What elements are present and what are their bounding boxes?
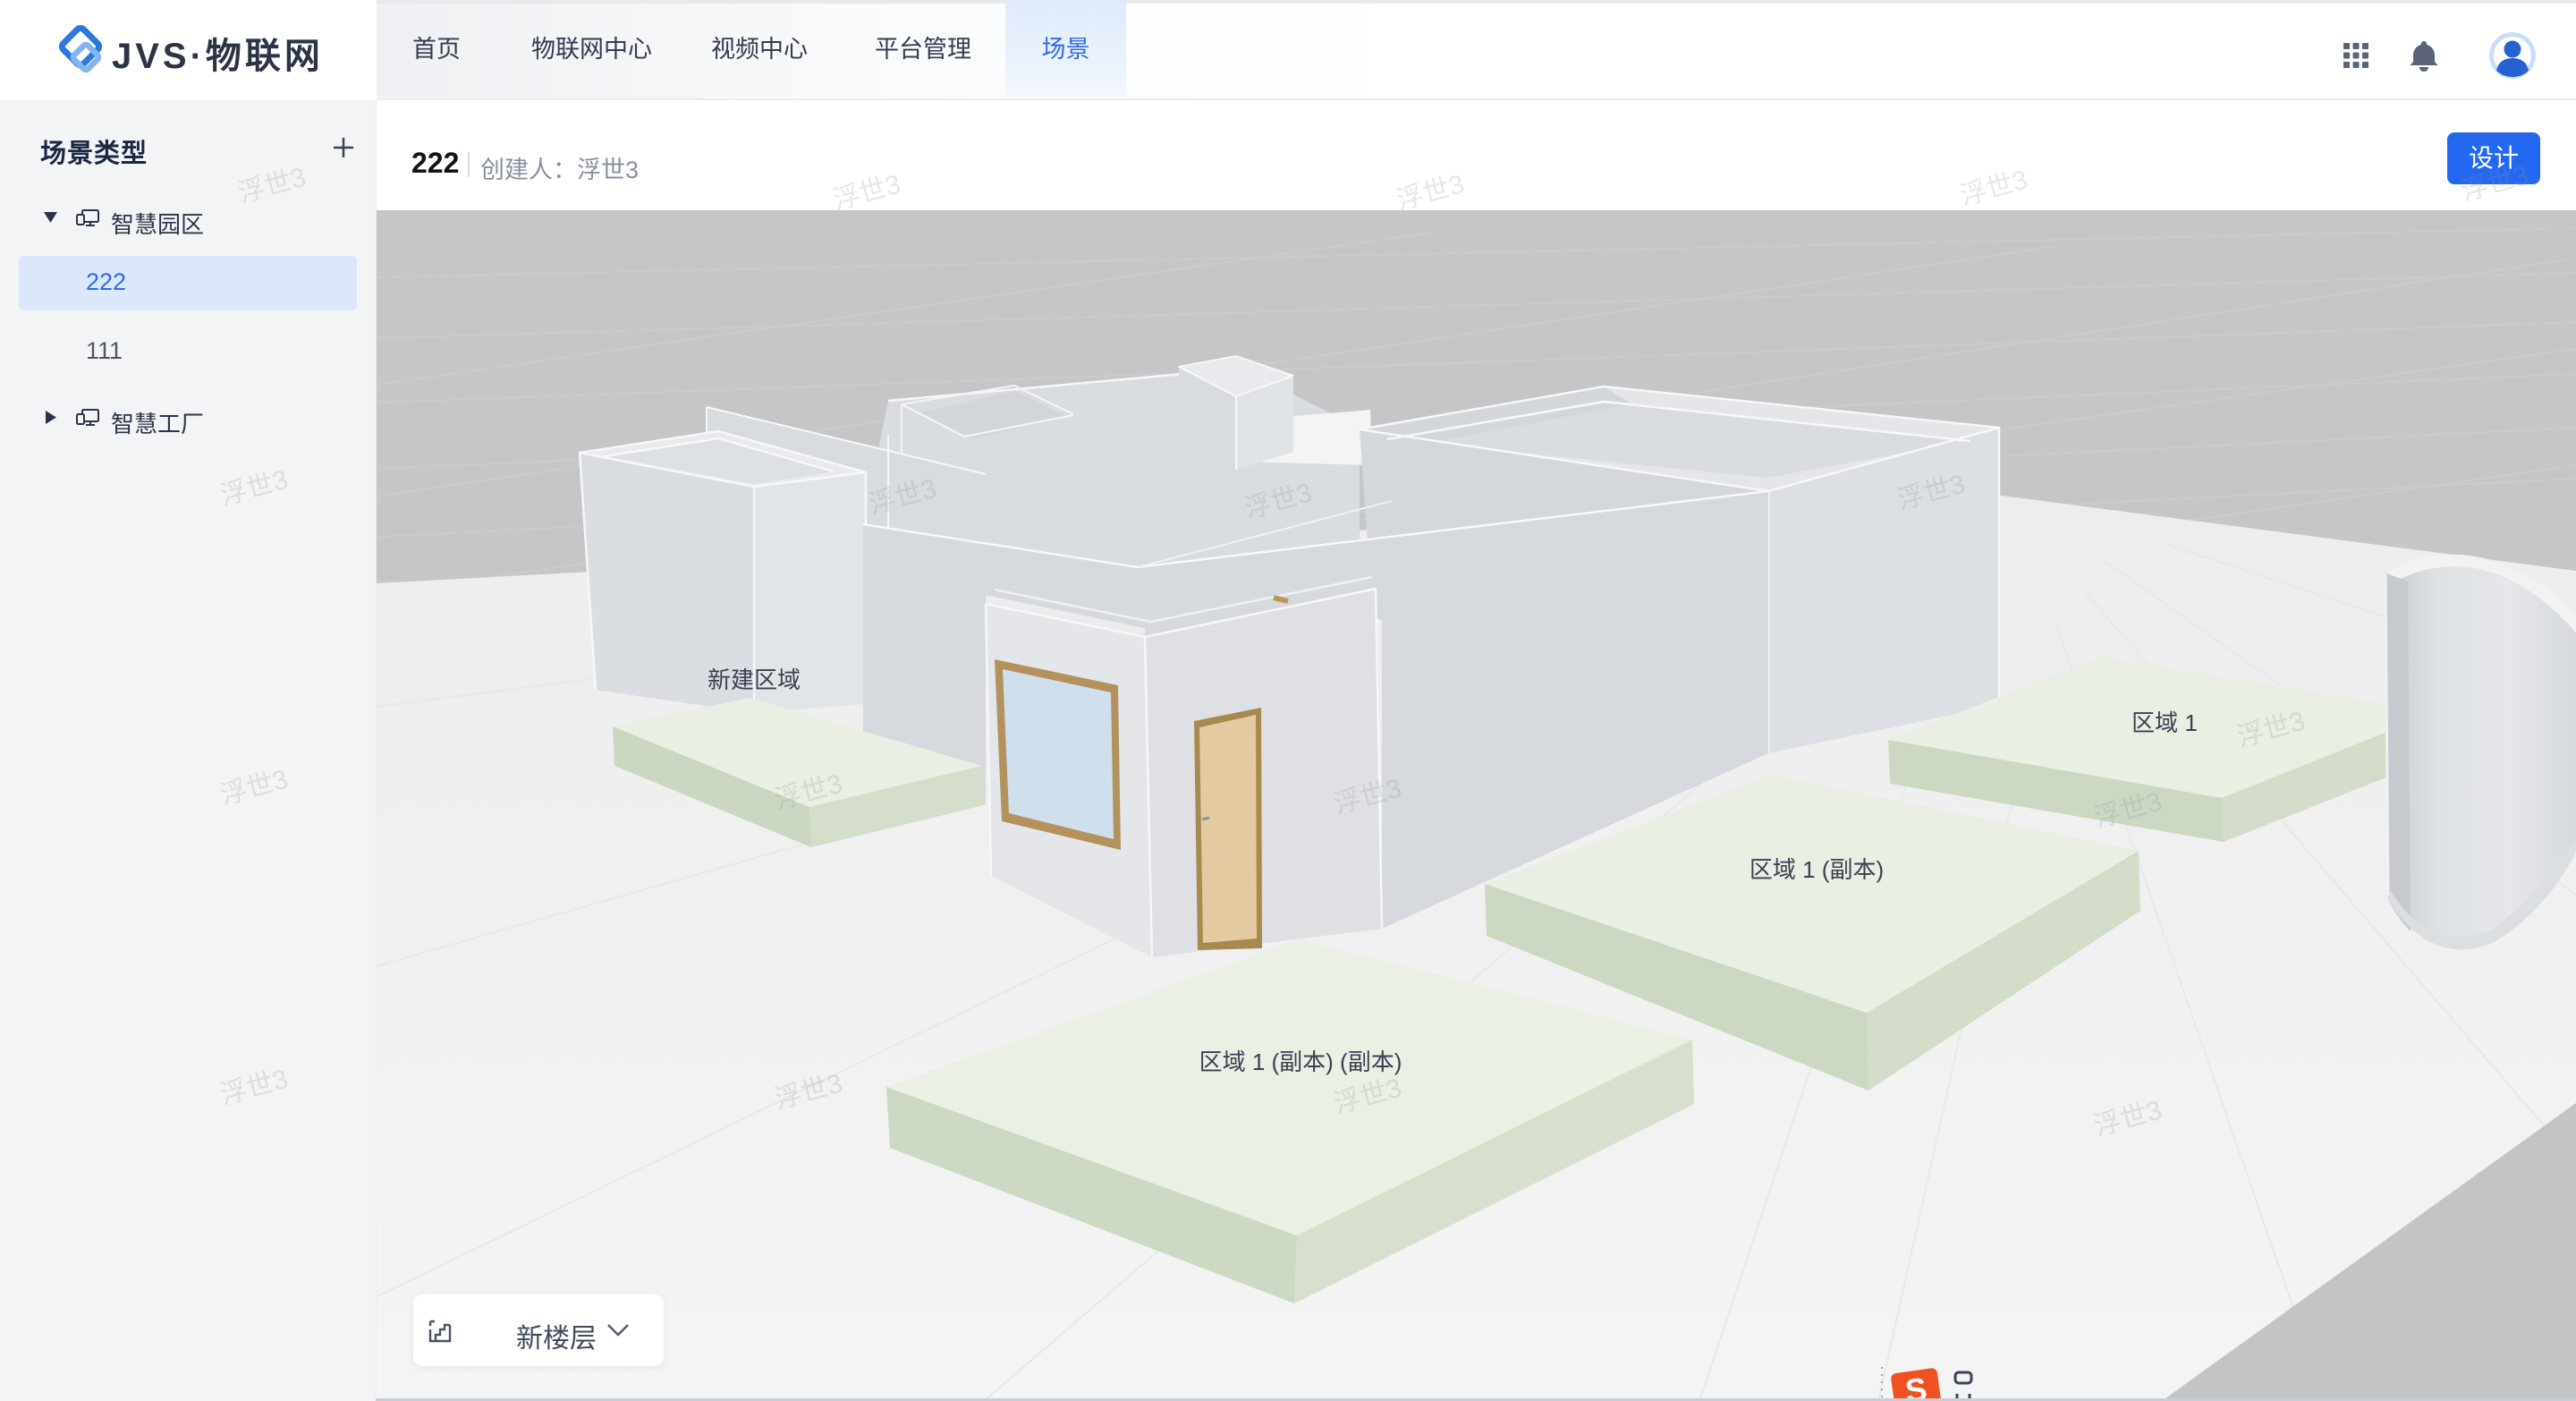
svg-text:新建区域: 新建区域: [708, 667, 801, 693]
svg-text:区域 1: 区域 1: [2131, 709, 2198, 736]
svg-text:区域 1 (副本): 区域 1 (副本): [1750, 856, 1884, 883]
